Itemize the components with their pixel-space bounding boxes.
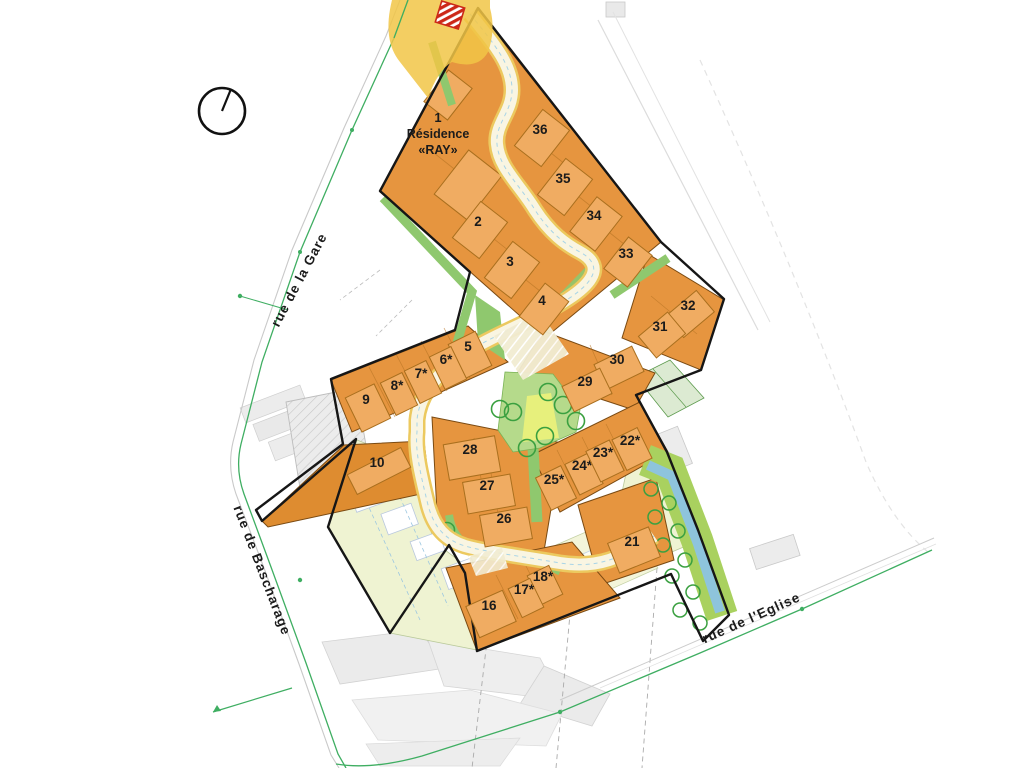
svg-text:3: 3 — [506, 254, 514, 269]
svg-text:27: 27 — [479, 478, 494, 493]
svg-text:25*: 25* — [544, 472, 565, 487]
svg-text:34: 34 — [586, 208, 602, 223]
svg-text:4: 4 — [538, 293, 546, 308]
svg-text:18*: 18* — [533, 569, 554, 584]
svg-text:31: 31 — [652, 319, 668, 334]
svg-text:36: 36 — [532, 122, 548, 137]
svg-text:23*: 23* — [593, 445, 614, 460]
svg-text:9: 9 — [362, 392, 370, 407]
svg-text:28: 28 — [462, 442, 478, 457]
svg-text:22*: 22* — [620, 433, 641, 448]
svg-text:29: 29 — [577, 374, 592, 389]
svg-text:8*: 8* — [391, 378, 405, 393]
svg-text:5: 5 — [464, 339, 472, 354]
svg-text:35: 35 — [555, 171, 571, 186]
svg-text:Résidence: Résidence — [407, 127, 470, 141]
svg-text:17*: 17* — [514, 582, 535, 597]
svg-text:2: 2 — [474, 214, 482, 229]
svg-text:10: 10 — [369, 455, 384, 470]
svg-text:«RAY»: «RAY» — [418, 143, 457, 157]
svg-text:30: 30 — [609, 352, 624, 367]
north-compass-icon — [199, 88, 245, 134]
svg-text:16: 16 — [481, 598, 497, 613]
site-plan-map: 234363534333231302956*7*8*91028272625*24… — [0, 0, 1024, 768]
svg-text:33: 33 — [618, 246, 634, 261]
svg-text:6*: 6* — [440, 352, 454, 367]
street-label-gare: rue de la Gare — [268, 230, 330, 329]
svg-text:1: 1 — [434, 110, 441, 125]
svg-text:26: 26 — [496, 511, 512, 526]
svg-text:21: 21 — [624, 534, 640, 549]
svg-text:32: 32 — [680, 298, 695, 313]
svg-text:7*: 7* — [415, 366, 429, 381]
site-plan-page: 234363534333231302956*7*8*91028272625*24… — [0, 0, 1024, 768]
